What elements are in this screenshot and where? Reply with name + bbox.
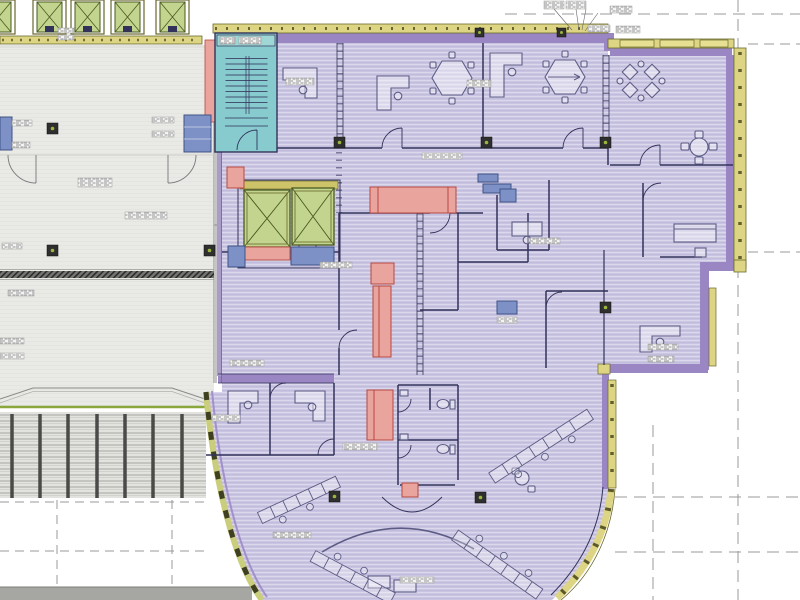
fixture <box>228 246 245 267</box>
fixture <box>478 174 498 182</box>
column <box>475 28 484 37</box>
existing-core-zone <box>0 45 214 408</box>
chair <box>638 61 644 67</box>
room-label <box>0 338 24 344</box>
room-label <box>400 577 434 583</box>
annotation-label <box>610 6 632 13</box>
chair <box>638 95 644 101</box>
existing-core-floor <box>0 45 214 408</box>
elevator-car <box>71 0 104 34</box>
room-label <box>286 78 314 85</box>
bottom-gray-bar <box>0 587 252 600</box>
room-label <box>530 238 560 244</box>
annotation-label <box>616 26 640 33</box>
casework <box>227 167 244 188</box>
fixture <box>0 117 12 150</box>
chair <box>468 88 474 94</box>
counter-casework <box>370 187 456 213</box>
tall-casework <box>373 286 391 357</box>
fixture <box>500 189 516 202</box>
column <box>47 245 58 256</box>
chair <box>709 143 717 150</box>
room-label <box>152 117 174 123</box>
floor-plan-drawing <box>0 0 800 600</box>
room-label <box>467 80 491 87</box>
column <box>600 137 611 148</box>
chair <box>695 157 703 164</box>
wall-pier <box>620 40 654 47</box>
chair <box>244 401 252 409</box>
column <box>329 491 340 502</box>
toilet-tank <box>450 400 455 409</box>
chair <box>543 61 549 67</box>
chair <box>468 62 474 68</box>
room-label <box>273 532 311 538</box>
east-partition-band <box>726 55 734 267</box>
chair <box>523 236 531 244</box>
east-step-wall <box>734 260 746 272</box>
annotation-label <box>544 1 564 9</box>
room-label <box>422 153 462 159</box>
stair-label <box>220 37 235 44</box>
annotation-label <box>588 25 610 32</box>
chair <box>449 52 455 58</box>
chair <box>581 61 587 67</box>
elevator-car <box>111 0 144 34</box>
small-casework <box>402 483 418 497</box>
toilet <box>437 445 449 454</box>
chair <box>659 78 665 84</box>
sink <box>400 390 408 396</box>
column <box>334 137 345 148</box>
sink <box>400 434 408 440</box>
chair <box>562 97 568 103</box>
round-table <box>690 138 708 156</box>
column <box>47 123 58 134</box>
column <box>204 245 215 256</box>
south-east-band <box>608 364 708 373</box>
west-interior-band <box>218 374 334 383</box>
sofa <box>674 224 716 242</box>
chair <box>681 143 689 150</box>
chair <box>695 131 703 138</box>
chair <box>528 486 535 492</box>
room-label <box>78 178 112 187</box>
annotation-label <box>58 28 74 33</box>
annotation-label <box>566 1 586 9</box>
chair <box>617 78 623 84</box>
chair <box>581 87 587 93</box>
existing-hatched-wall <box>0 271 214 278</box>
casework <box>367 390 393 440</box>
chair <box>299 86 307 94</box>
column <box>557 28 566 37</box>
elevator-sill-pink <box>245 247 290 260</box>
room-label <box>497 317 517 323</box>
chair <box>430 62 436 68</box>
desk <box>512 222 542 236</box>
room-label <box>12 142 30 148</box>
room-label <box>212 415 240 421</box>
annotation-label <box>648 344 678 350</box>
room-label <box>2 243 22 249</box>
room-label <box>152 131 174 137</box>
toilet <box>437 400 449 409</box>
room-label <box>125 212 167 219</box>
fixture <box>497 301 517 314</box>
side-table <box>695 248 706 257</box>
wall-pier <box>700 40 728 47</box>
room-label <box>12 120 32 126</box>
chair <box>308 403 316 411</box>
stairwell <box>205 33 277 152</box>
casework <box>371 263 394 284</box>
chair <box>543 87 549 93</box>
column <box>481 137 492 148</box>
east-lower-exterior-wall <box>709 288 716 366</box>
east-exterior-wall <box>734 48 746 268</box>
elevator-car <box>156 0 189 34</box>
wall-pier <box>660 40 694 47</box>
room-label <box>320 262 352 268</box>
elevator-car <box>244 190 290 247</box>
room-label <box>230 360 264 366</box>
south-east-corner-wall <box>598 364 610 374</box>
dock-striped-area <box>0 412 206 498</box>
chair <box>562 51 568 57</box>
chair <box>394 92 402 100</box>
annotation-label <box>58 35 74 40</box>
floor-plan-canvas <box>0 0 800 600</box>
column <box>600 302 611 313</box>
chair <box>508 68 516 76</box>
room-label <box>8 290 34 296</box>
chair <box>430 88 436 94</box>
elevator-car <box>292 188 334 245</box>
fixture <box>184 115 211 152</box>
east-step-band <box>700 262 734 271</box>
column <box>475 492 486 503</box>
annotation-label <box>648 356 674 362</box>
chair <box>449 98 455 104</box>
north-exterior-wall <box>213 24 608 33</box>
stair-label <box>239 37 261 44</box>
toilet-tank <box>450 445 455 454</box>
east-lower-band <box>700 270 709 370</box>
room-label <box>343 443 377 450</box>
room-label <box>0 353 24 359</box>
